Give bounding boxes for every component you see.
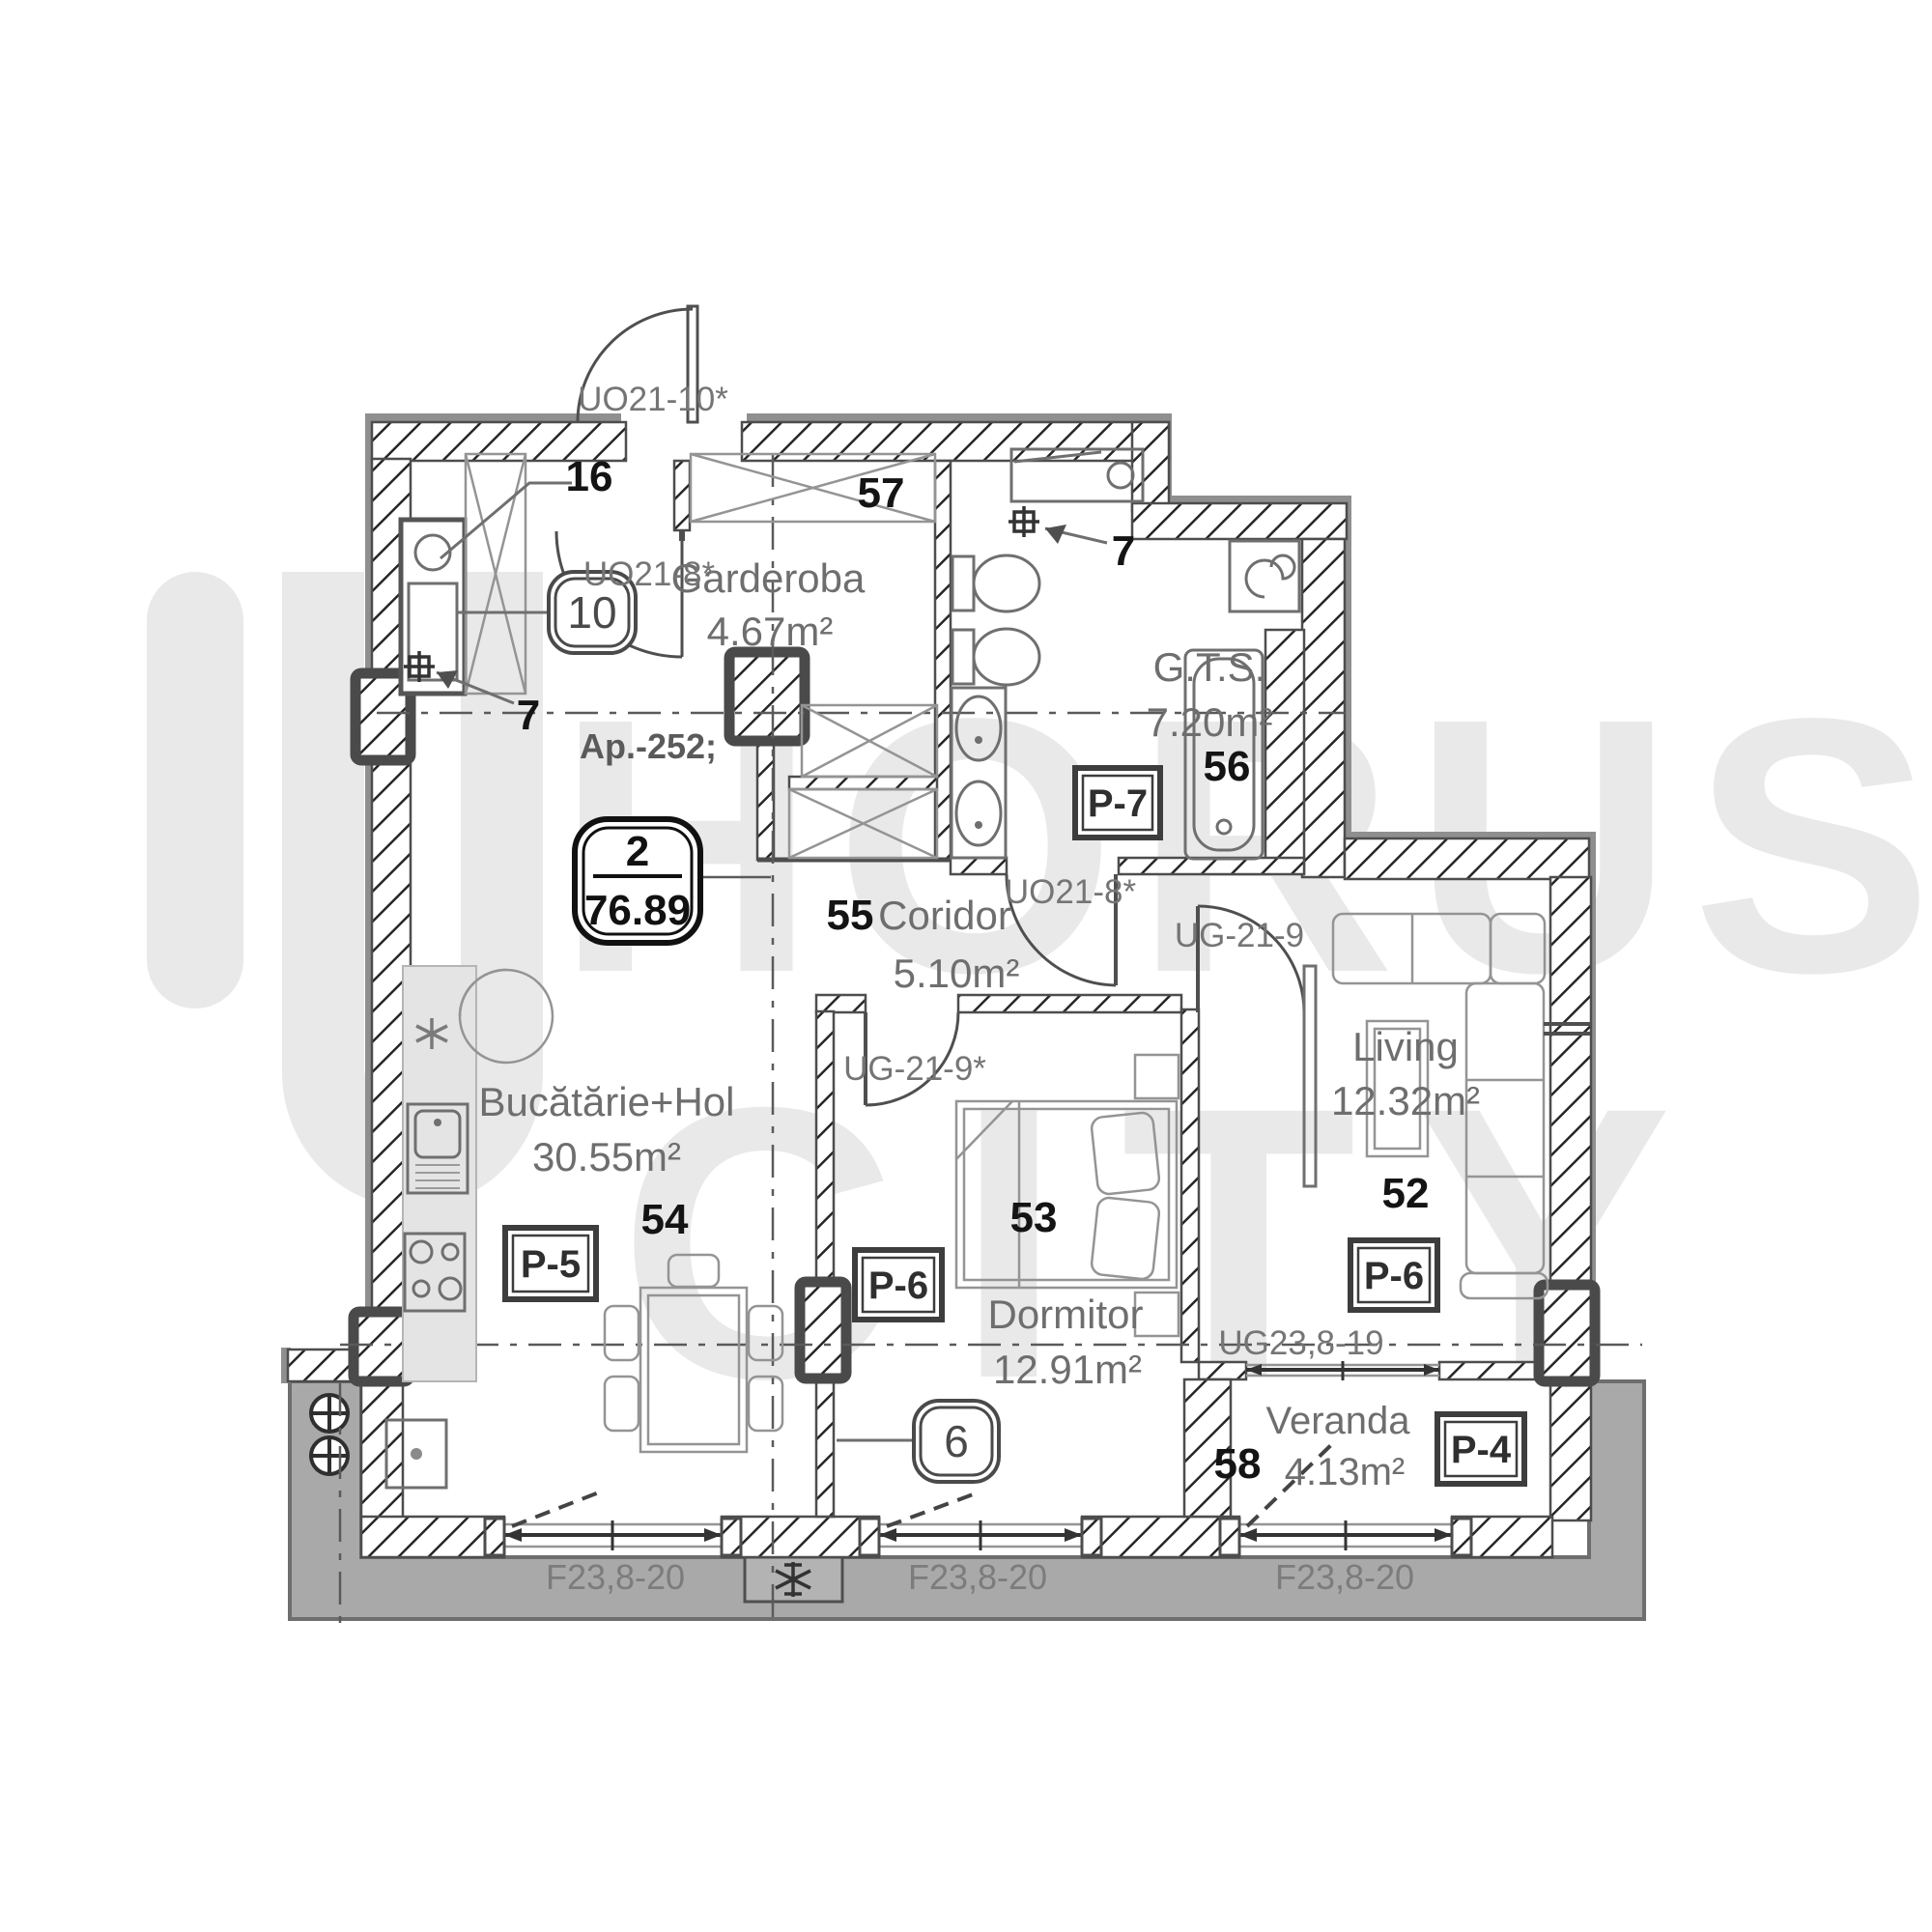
door-code-entry: UO21-10*: [578, 381, 728, 418]
finish-box-p7: P-7: [1075, 768, 1160, 838]
svg-text:P-5: P-5: [521, 1243, 581, 1286]
garderoba-number: 57: [858, 469, 905, 517]
dormitor-name: Dormitor: [987, 1292, 1143, 1337]
callout-7-hall: 7: [517, 692, 540, 739]
living-name: Living: [1352, 1024, 1459, 1069]
door-code-living: UG-21-9: [1175, 917, 1304, 954]
coridor-name: Coridor: [878, 893, 1011, 938]
callout-7-bath: 7: [1112, 527, 1135, 575]
badge-room-count: 2: [626, 828, 649, 875]
tap-valve-bath-icon: [1009, 506, 1039, 537]
ac-unit-icon: [745, 1557, 842, 1602]
finish-box-p6-dormitor: P-6: [855, 1250, 942, 1320]
floorplan-page: HORUS CITY F23,8-20 F23,8-20 F23,8-20: [0, 0, 1932, 1932]
callout-6-text: 6: [944, 1416, 969, 1466]
living-area: 12.32m²: [1331, 1078, 1480, 1123]
watermark-logo-bar: [147, 572, 243, 1009]
bucatarie-area: 30.55m²: [532, 1134, 681, 1179]
dormitor-area: 12.91m²: [993, 1347, 1142, 1392]
gts-name: G.T.S.: [1153, 644, 1266, 690]
bucatarie-name: Bucătărie+Hol: [479, 1079, 735, 1124]
svg-text:P-7: P-7: [1088, 782, 1148, 825]
window-code-1: F23,8-20: [546, 1557, 685, 1597]
coridor-area: 5.10m²: [894, 951, 1020, 996]
gts-area: 7.20m²: [1147, 699, 1273, 745]
veranda-number: 58: [1214, 1440, 1262, 1488]
window-code-2: F23,8-20: [908, 1557, 1047, 1597]
callout-16: 16: [566, 453, 613, 500]
dormitor-number: 53: [1010, 1194, 1058, 1241]
finish-box-p5: P-5: [505, 1228, 596, 1299]
veranda-area: 4.13m²: [1285, 1451, 1406, 1493]
living-number: 52: [1382, 1170, 1430, 1217]
bucatarie-number: 54: [641, 1196, 689, 1243]
finish-box-p4: P-4: [1437, 1414, 1524, 1484]
svg-text:P-6: P-6: [868, 1264, 928, 1307]
finish-box-p6-living: P-6: [1350, 1240, 1437, 1310]
svg-text:P-4: P-4: [1451, 1429, 1512, 1471]
apartment-id: Ap.-252;: [580, 726, 717, 766]
svg-text:P-6: P-6: [1364, 1255, 1424, 1297]
tap-valve-hall-icon: [404, 651, 435, 682]
door-code-garderoba: UO21-8*: [583, 555, 716, 593]
garderoba-area: 4.67m²: [707, 609, 834, 654]
window-code-3: F23,8-20: [1275, 1557, 1414, 1597]
door-code-veranda: UG23,8-19: [1218, 1324, 1383, 1362]
badge-total-area: 76.89: [584, 887, 691, 934]
callout-10-text: 10: [567, 587, 616, 638]
floorplan-drawing: HORUS CITY F23,8-20 F23,8-20 F23,8-20: [0, 0, 1932, 1932]
door-code-bathroom: UO21-8*: [1005, 873, 1137, 911]
coridor-number: 55: [827, 892, 874, 939]
door-code-dormitor: UG-21-9*: [843, 1050, 986, 1088]
gts-number: 56: [1204, 743, 1251, 790]
apartment-badge: 2 76.89: [575, 819, 700, 943]
veranda-name: Veranda: [1265, 1400, 1410, 1442]
